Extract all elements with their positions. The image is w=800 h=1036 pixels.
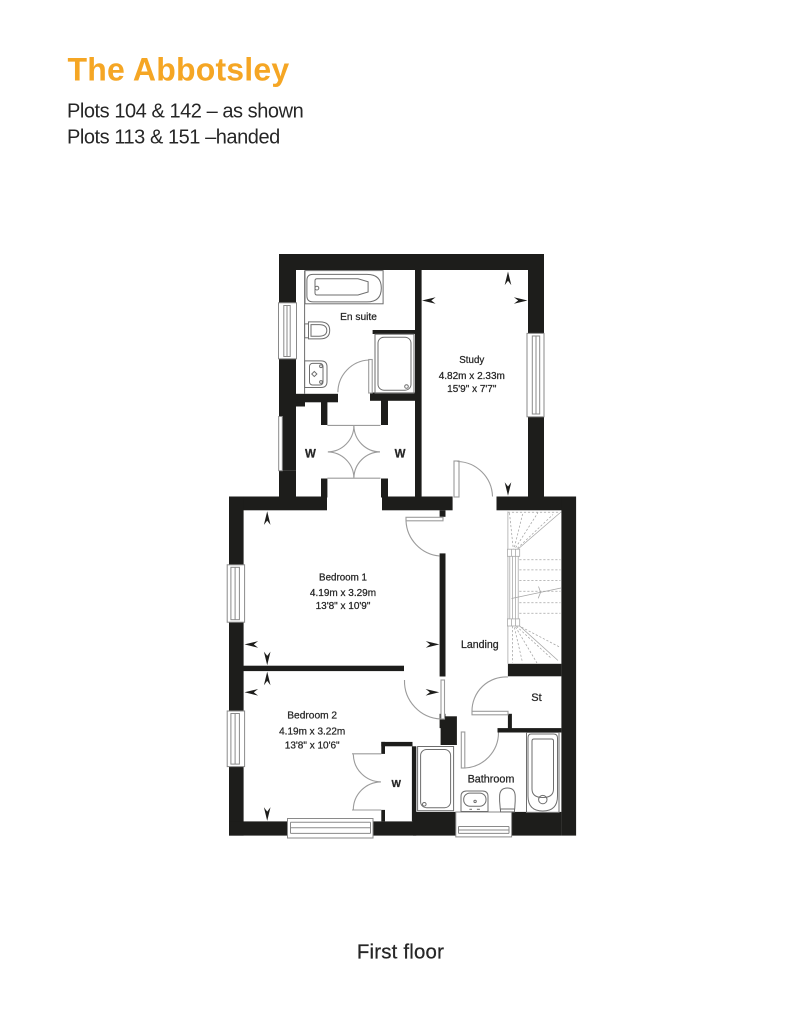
svg-text:W: W: [391, 779, 401, 790]
svg-text:Bathroom: Bathroom: [468, 774, 515, 786]
svg-text:St: St: [531, 692, 541, 704]
svg-text:4.19m x 3.22m: 4.19m x 3.22m: [279, 727, 345, 738]
svg-text:W: W: [395, 449, 406, 461]
svg-text:Plots 113 & 151 –handed: Plots 113 & 151 –handed: [67, 127, 280, 149]
svg-text:First floor: First floor: [357, 942, 444, 964]
svg-text:13'8" x 10'9": 13'8" x 10'9": [316, 601, 371, 612]
svg-text:Study: Study: [459, 355, 484, 366]
svg-text:Bedroom 1: Bedroom 1: [319, 573, 367, 584]
svg-text:Landing: Landing: [461, 639, 499, 651]
svg-text:En suite: En suite: [340, 312, 377, 323]
svg-text:The Abbotsley: The Abbotsley: [68, 52, 290, 88]
svg-text:Plots 104 & 142 – as shown: Plots 104 & 142 – as shown: [67, 100, 303, 122]
svg-text:15'9" x 7'7": 15'9" x 7'7": [447, 384, 497, 395]
svg-text:W: W: [305, 449, 316, 461]
svg-text:4.19m x 3.29m: 4.19m x 3.29m: [310, 588, 376, 599]
svg-text:4.82m x 2.33m: 4.82m x 2.33m: [439, 371, 505, 382]
svg-text:Bedroom 2: Bedroom 2: [287, 711, 337, 722]
svg-text:13'8" x 10'6": 13'8" x 10'6": [285, 741, 340, 752]
